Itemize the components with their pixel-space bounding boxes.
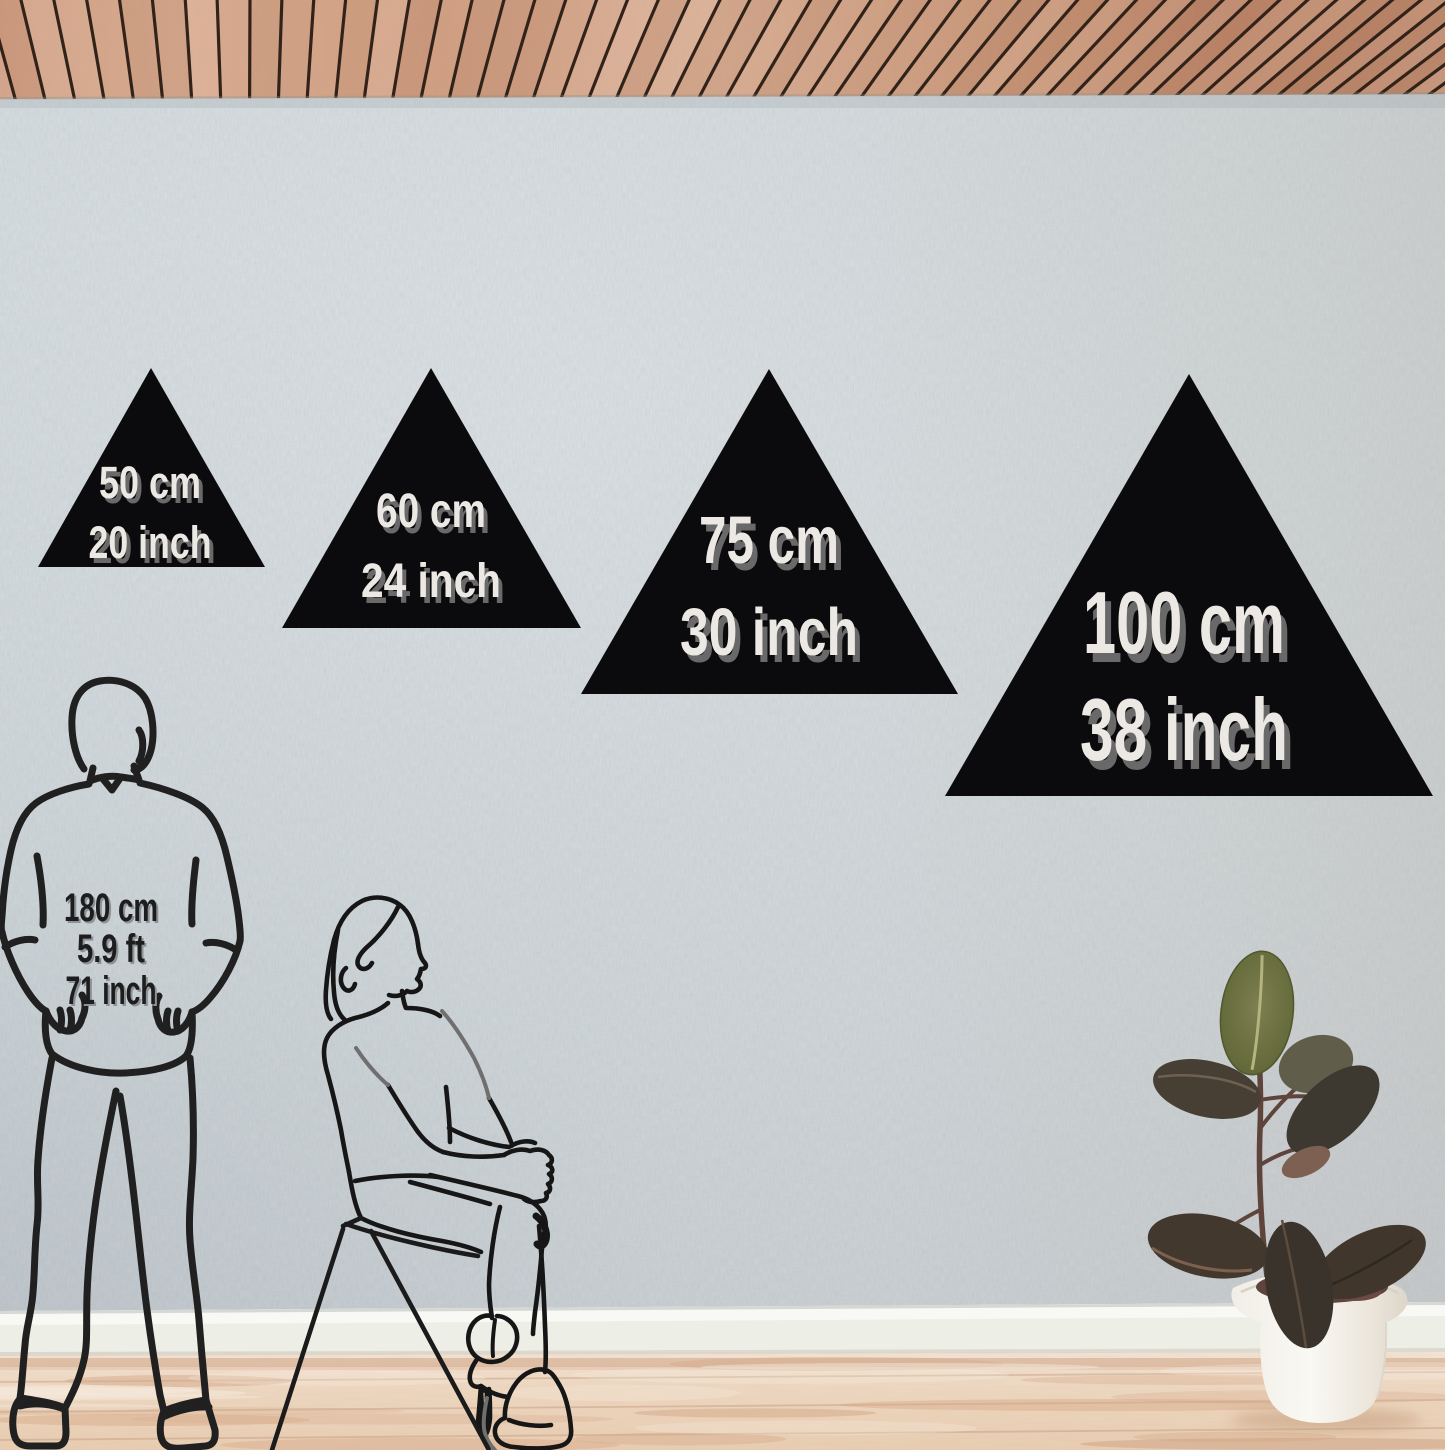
svg-text:20 inch: 20 inch [89, 517, 212, 568]
svg-text:180 cm: 180 cm [64, 886, 158, 930]
svg-text:38 inch: 38 inch [1080, 680, 1288, 779]
svg-text:5.9 ft: 5.9 ft [77, 927, 145, 971]
svg-text:60 cm: 60 cm [376, 485, 486, 538]
svg-text:71 inch: 71 inch [66, 969, 157, 1013]
svg-text:75 cm: 75 cm [699, 503, 839, 578]
svg-text:30 inch: 30 inch [680, 595, 858, 670]
svg-text:24 inch: 24 inch [361, 555, 501, 608]
svg-text:50 cm: 50 cm [99, 457, 201, 508]
svg-text:100 cm: 100 cm [1083, 573, 1285, 672]
